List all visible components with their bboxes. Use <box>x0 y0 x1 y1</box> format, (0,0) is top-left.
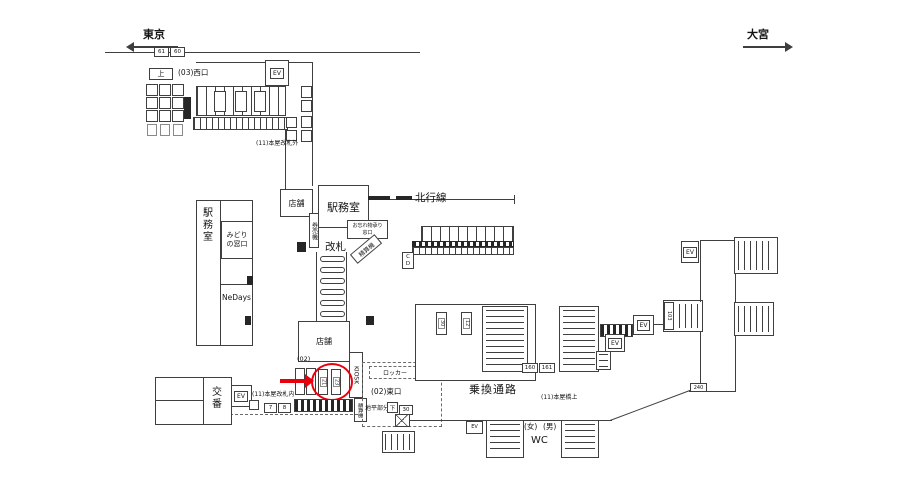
escalator-bar <box>320 289 345 295</box>
west-exit-label: (03)西口 <box>178 69 208 78</box>
elevator-label: EV <box>637 320 651 331</box>
direction-omiya-label: 大宮 <box>747 29 769 42</box>
koban-label: 交番 <box>209 386 221 410</box>
track-number-a: 61 <box>158 49 165 55</box>
west-grid-footer <box>147 124 157 136</box>
stairs-small <box>596 351 611 370</box>
east-exit-stairs <box>382 431 415 453</box>
tokyo-arrow-left-icon <box>126 42 134 52</box>
sign-mark <box>366 316 374 325</box>
escalator-up-box: 上 <box>149 68 173 80</box>
stair-treads <box>565 424 595 454</box>
west-hall-machine <box>254 91 266 112</box>
wc-label: WC <box>531 435 548 447</box>
stairs-right-big <box>559 306 599 372</box>
north-line-end-tick <box>514 195 515 204</box>
sign-mark <box>297 242 306 252</box>
track-line <box>105 52 420 53</box>
passage-diagonal-wall <box>610 390 691 421</box>
transfer-elevator-b: EV <box>605 334 625 352</box>
west-elevator: EV <box>265 60 289 86</box>
west-grid-cell <box>172 110 184 122</box>
number-103-label: 103 <box>666 311 672 321</box>
stair-treads <box>738 306 770 332</box>
machine-8-label: 8 <box>283 405 287 411</box>
ticket-machines-box: 券売機 <box>309 213 319 248</box>
corridor-wall-right <box>312 62 313 186</box>
lost-and-found-label: お忘れ物承り 窓口 <box>352 223 382 236</box>
transfer-elevator-a: EV <box>633 315 654 335</box>
elevator-label: EV <box>471 424 478 432</box>
nedays-label: NeDays <box>222 294 251 303</box>
stair-treads <box>599 354 608 367</box>
ticket-machines-label: 券売機 <box>310 222 319 240</box>
right-corridor-top-wall <box>700 240 736 241</box>
machine-8-box: 8 <box>278 403 291 413</box>
station-office-left-label: 駅務室 <box>200 207 212 243</box>
shaft-wall <box>346 252 347 323</box>
midori-window-box: みどり の窓口 <box>221 221 253 259</box>
stairs-mid-right <box>734 302 774 336</box>
stair-treads <box>490 424 520 454</box>
corridor-machine <box>301 100 312 112</box>
highlight-arrow-bar <box>280 379 307 383</box>
track-number-b: 60 <box>174 49 181 55</box>
boundary-dashed-line <box>230 414 363 415</box>
right-corridor-elevator: EV <box>681 241 699 263</box>
west-sign-box <box>184 97 191 119</box>
south-gate-row <box>294 399 353 412</box>
escalator-bar <box>320 311 345 317</box>
elevator-label: EV <box>270 68 284 79</box>
right-corridor-wall-right <box>735 336 736 391</box>
escalator-bar <box>320 267 345 273</box>
west-grid-cell <box>172 84 184 96</box>
transfer-machine-b: 12 <box>461 312 472 335</box>
transfer-machine-a: 30 <box>436 312 447 335</box>
north-line-tick <box>396 196 412 200</box>
wc-stairs-right <box>561 420 599 458</box>
sign-mark <box>245 316 251 325</box>
number-160-box: 160 <box>522 363 538 373</box>
west-grid-cell <box>146 110 158 122</box>
direction-tokyo-label: 東京 <box>143 29 165 42</box>
track-number-box-b: 60 <box>170 47 185 57</box>
code-02-label: (02) <box>297 356 310 363</box>
station-map: 東京 大宮 61 60 上 (03)西口 EV (11)本屋改札外 駅務室 みど… <box>0 0 919 491</box>
wc-women-label: (女) <box>524 423 537 432</box>
machine-7-label: 7 <box>269 405 273 411</box>
stair-treads <box>738 241 774 270</box>
koban-divider <box>203 377 204 425</box>
platform-gate-row <box>412 247 514 255</box>
escalator-up-label: 上 <box>158 69 165 79</box>
north-line-label: 北行線 <box>415 192 447 204</box>
koban-inner-line <box>155 400 203 401</box>
west-grid-cell <box>159 110 171 122</box>
east-exit-label: (02)東口 <box>371 388 401 397</box>
platform-columns <box>421 226 514 242</box>
shaft-wall <box>316 252 317 323</box>
station-office-center-label: 駅務室 <box>327 199 360 215</box>
corridor-machine <box>301 116 312 128</box>
number-161-box: 161 <box>539 363 555 373</box>
west-grid-cell <box>159 84 171 96</box>
west-gate-row <box>193 117 288 130</box>
west-grid-footer <box>173 124 183 136</box>
number-160-label: 160 <box>525 365 536 371</box>
cd-machine-box: C D <box>402 252 414 269</box>
gate-label: 改札 <box>325 241 346 253</box>
outside-gate-label: (11)本屋改札外 <box>256 141 298 148</box>
number-103-box: 103 <box>664 302 674 330</box>
down-label: 下 <box>390 404 396 412</box>
machine-7-box: 7 <box>264 403 277 413</box>
right-corridor-wall-left <box>700 240 701 302</box>
stair-treads <box>385 434 412 450</box>
elevator-label: EV <box>683 247 697 258</box>
wc-elevator: EV <box>466 421 483 434</box>
cd-machine-label: C D <box>406 254 410 267</box>
west-grid-cell <box>146 97 158 109</box>
corridor-machine <box>301 130 312 142</box>
lost-and-found-box: お忘れ物承り 窓口 <box>347 220 388 239</box>
corridor-machine <box>286 117 297 128</box>
bridge-label: (11)本屋橋上 <box>541 395 577 402</box>
number-161-label: 161 <box>542 365 553 371</box>
north-line-tick <box>368 196 390 200</box>
west-grid-cell <box>159 97 171 109</box>
omiya-arrow-line <box>743 46 785 48</box>
stair-treads <box>486 310 524 368</box>
wc-stairs-left <box>486 420 524 458</box>
transfer-machine-b-label: 12 <box>463 318 470 328</box>
down-box: 下 <box>387 402 398 413</box>
shop-bottom-label: 店舗 <box>316 336 332 347</box>
stair-treads <box>563 310 595 368</box>
escalator-bar <box>320 278 345 284</box>
kiosk-label: KIOSK <box>353 366 360 384</box>
west-grid-cell <box>172 97 184 109</box>
cross-box <box>395 414 410 427</box>
elevator-label: EV <box>234 391 248 402</box>
locker-box: ロッカー <box>369 366 421 379</box>
west-hall-machine <box>235 91 247 112</box>
elevator-label: EV <box>608 338 622 349</box>
corridor-machine <box>301 86 312 98</box>
escalator-bar <box>320 300 345 306</box>
transfer-passage-label: 乗換通路 <box>469 384 517 397</box>
wc-men-label: (男) <box>543 423 556 432</box>
locker-label: ロッカー <box>383 368 407 377</box>
highlight-circle <box>311 363 353 401</box>
building-top-wall <box>196 62 312 63</box>
number-240-label: 240 <box>694 385 704 391</box>
highlight-arrow-head-icon <box>305 374 314 388</box>
right-corridor-wall-right <box>735 274 736 303</box>
midori-window-label: みどり の窓口 <box>227 231 248 249</box>
track-number-box-a: 61 <box>154 47 169 57</box>
transfer-machine-a-label: 30 <box>438 318 445 328</box>
escalator-bar <box>320 256 345 262</box>
fare-adjust-label: 精算機 <box>356 240 376 258</box>
west-grid-footer <box>160 124 170 136</box>
small-box <box>249 400 259 410</box>
shop-top-label: 店舗 <box>289 198 305 209</box>
west-grid-cell <box>146 84 158 96</box>
number-30-label: 30 <box>403 407 410 413</box>
omiya-arrow-right-icon <box>785 42 793 52</box>
stairs-top-right <box>734 237 778 274</box>
number-240-box: 240 <box>690 383 707 392</box>
inside-gate-label: (11)本屋改札内 <box>252 392 294 399</box>
west-hall-machine <box>214 91 226 112</box>
ground-level-label: 地平部分 <box>365 406 389 413</box>
sign-mark <box>247 276 253 285</box>
